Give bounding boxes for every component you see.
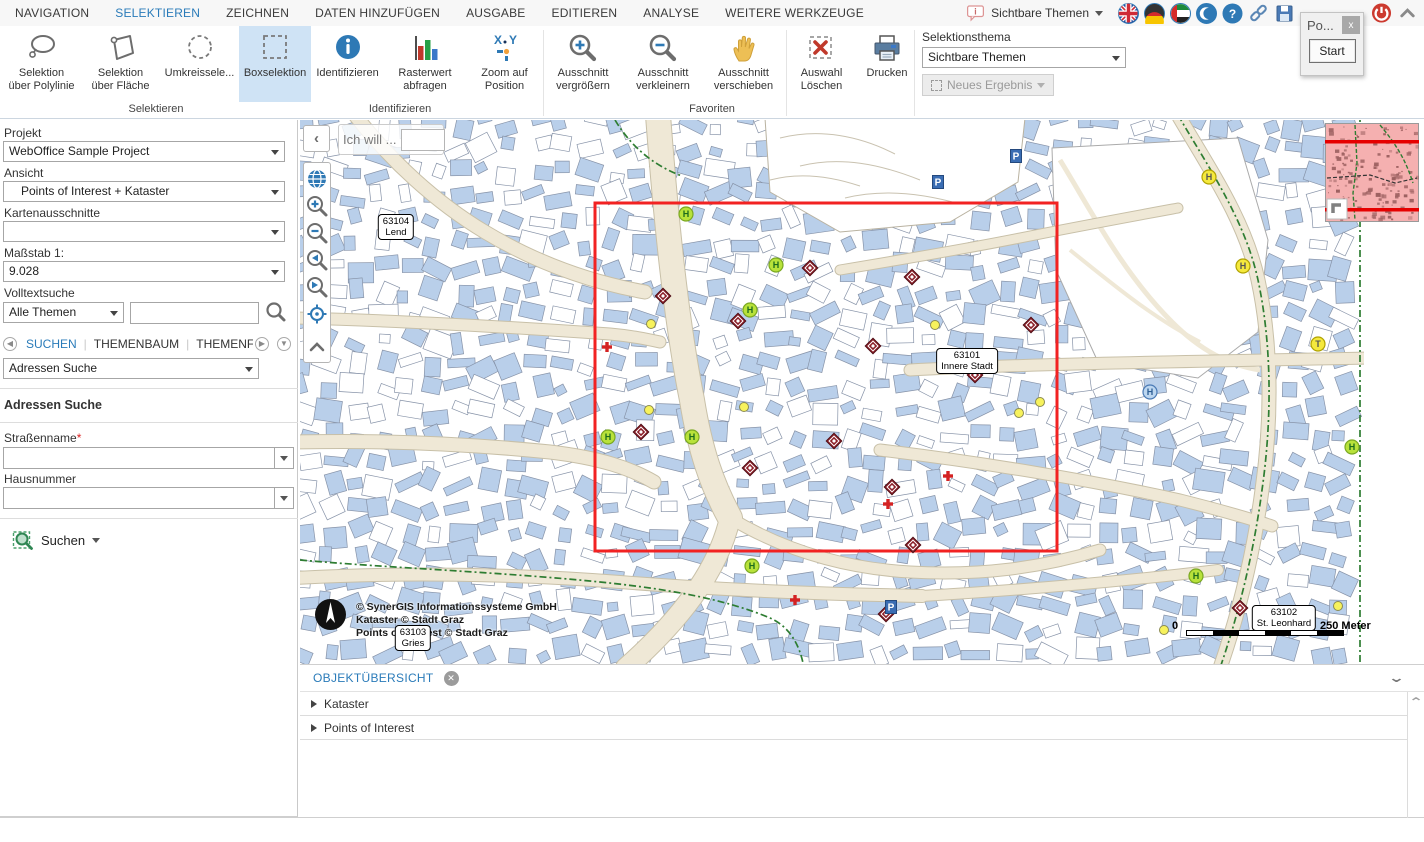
expand-arrow-icon <box>311 700 317 708</box>
overview-map[interactable] <box>1325 123 1419 222</box>
tab-themenbaum[interactable]: THEMENBAUM <box>87 337 186 351</box>
popup-title: Po... <box>1307 18 1334 33</box>
district-label-63103: 63103Gries <box>395 625 431 651</box>
volltextsuche-label: Volltextsuche <box>4 286 75 300</box>
menu-tab-selektieren[interactable]: SELEKTIEREN <box>102 0 213 26</box>
massstab-label: Maßstab 1: <box>4 246 64 260</box>
theme-quick-select[interactable]: Sichtbare Themen <box>991 6 1103 20</box>
delete-selection-icon <box>784 29 859 66</box>
panel-collapse-icon[interactable]: ⌄ <box>1388 670 1405 686</box>
tabs-scroll-right-icon[interactable]: ▶ <box>255 337 269 351</box>
group-label-selektieren: Selektieren <box>128 103 183 115</box>
kartenausschnitte-label: Kartenausschnitte <box>4 206 100 220</box>
popup-dialog: Po... x Start <box>1300 12 1364 76</box>
map-copyright: © SynerGIS Informationssysteme GmbHKatas… <box>356 601 557 640</box>
svg-text:H: H <box>747 305 754 315</box>
ich-will-input[interactable] <box>401 129 445 151</box>
tabs-scroll-left-icon[interactable]: ◀ <box>3 337 17 351</box>
barchart-icon <box>384 29 466 66</box>
link-icon[interactable] <box>1248 3 1269 24</box>
panel-scroll-up-icon[interactable]: ⌃ <box>1408 695 1423 709</box>
tool-selektion-ueber-polylinie[interactable]: Selektion über Polylinie <box>2 26 81 102</box>
projekt-label: Projekt <box>4 126 41 140</box>
weboffice-app: NAVIGATIONSELEKTIERENZEICHNENDATEN HINZU… <box>0 0 1424 842</box>
hausnummer-combo[interactable] <box>3 487 294 509</box>
menu-tab-weitere-werkzeuge[interactable]: WEITERE WERKZEUGE <box>712 0 877 26</box>
svg-text:H: H <box>683 209 690 219</box>
selektionsthema-label: Selektionsthema <box>922 30 1132 44</box>
svg-text:T: T <box>1315 339 1321 349</box>
volltext-search-input[interactable] <box>130 302 259 324</box>
theme-quick-label: Sichtbare Themen <box>991 6 1089 20</box>
tool-drucken[interactable]: Drucken <box>859 26 915 102</box>
map-zoom-in-icon[interactable] <box>305 193 329 218</box>
tool-selektion-ueber-flaeche[interactable]: Selektion über Fläche <box>81 26 160 102</box>
map-nav-toolbar <box>303 162 331 363</box>
kartenausschnitte-select[interactable] <box>3 221 285 242</box>
tool-ausschnitt-verschieben[interactable]: Ausschnitt verschieben <box>703 26 784 102</box>
expand-arrow-icon <box>311 724 317 732</box>
dashed-box-icon <box>931 80 942 91</box>
locate-icon[interactable] <box>305 301 329 326</box>
globe-icon[interactable] <box>305 166 329 191</box>
ansicht-select[interactable]: Points of Interest + Kataster <box>3 181 285 202</box>
popup-close-button[interactable]: x <box>1342 16 1360 34</box>
menu-tab-zeichnen[interactable]: ZEICHNEN <box>213 0 302 26</box>
circle-dashed-icon <box>160 29 239 66</box>
north-arrow-icon <box>314 598 347 631</box>
ansicht-label: Ansicht <box>4 166 43 180</box>
polygon-icon <box>81 29 160 66</box>
chevron-down-icon <box>92 538 100 543</box>
massstab-select[interactable]: 9.028 <box>3 261 285 282</box>
tab-suchen[interactable]: SUCHEN <box>19 337 84 351</box>
svg-text:X: X <box>493 33 501 47</box>
suchen-button[interactable]: Suchen <box>12 528 100 553</box>
power-icon[interactable] <box>1371 3 1392 24</box>
tool-boxselektion[interactable]: Boxselektion <box>239 26 311 102</box>
group-label-favoriten: Favoriten <box>689 103 735 115</box>
flag-ae-icon[interactable] <box>1170 3 1191 24</box>
menu-tab-analyse[interactable]: ANALYSE <box>630 0 712 26</box>
svg-text:?: ? <box>1229 7 1236 21</box>
district-label-63104: 63104Lend <box>378 214 414 240</box>
next-extent-icon[interactable] <box>305 274 329 299</box>
popup-start-button[interactable]: Start <box>1309 39 1356 63</box>
help-icon[interactable]: ? <box>1222 3 1243 24</box>
flag-uk-icon[interactable] <box>1118 3 1139 24</box>
object-overview-panel: OBJEKTÜBERSICHT ✕ ⌄ KatasterPoints of In… <box>300 664 1424 817</box>
svg-text:H: H <box>1206 172 1213 182</box>
group-label-identifizieren: Identifizieren <box>369 103 431 115</box>
tool-zoom-auf-position[interactable]: XY Zoom auf Position <box>466 26 543 102</box>
svg-text:H: H <box>1240 261 1247 271</box>
svg-text:P: P <box>1013 152 1020 163</box>
collapse-sidebar-button[interactable]: ‹ <box>303 125 330 152</box>
menu-tab-daten-hinzuf-gen[interactable]: DATEN HINZUFÜGEN <box>302 0 453 26</box>
search-type-select[interactable]: Adressen Suche <box>3 358 259 379</box>
sidebar-tabs: ◀ SUCHEN|THEMENBAUM|THEMENFILTER ▶ ▼ <box>0 334 298 354</box>
menu-bar: NAVIGATIONSELEKTIERENZEICHNENDATEN HINZU… <box>0 0 1424 26</box>
selektionsthema-value: Sichtbare Themen <box>928 50 1026 64</box>
ich-will-label: Ich will ... <box>343 132 396 147</box>
tool-umkreisselektion[interactable]: Umkreissele... <box>160 26 239 102</box>
left-panel: Projekt WebOffice Sample Project Ansicht… <box>0 120 298 817</box>
tool-rasterwert-abfragen[interactable]: Rasterwert abfragen <box>384 26 466 102</box>
section-title: Adressen Suche <box>4 398 102 412</box>
svg-text:i: i <box>974 6 976 16</box>
zoom-out-icon <box>623 29 703 66</box>
info-icon <box>311 29 384 66</box>
menu-tab-editieren[interactable]: EDITIEREN <box>538 0 630 26</box>
ribbon-toolbar: Selektion über Polylinie Selektion über … <box>0 26 1424 119</box>
previous-extent-icon[interactable] <box>305 247 329 272</box>
chevron-down-icon <box>1112 56 1120 61</box>
scale-bar: 0 250 Meter <box>1172 619 1412 641</box>
overview-row-points-of-interest[interactable]: Points of Interest <box>300 716 1407 740</box>
ich-will-widget[interactable]: Ich will ... <box>338 124 444 155</box>
svg-text:H: H <box>605 432 612 442</box>
tool-identifizieren[interactable]: Identifizieren <box>311 26 384 102</box>
zoom-in-icon <box>543 29 623 66</box>
volltext-scope-select[interactable]: Alle Themen <box>3 302 124 323</box>
crescent-icon[interactable] <box>1196 3 1217 24</box>
tab-themenfilter[interactable]: THEMENFILTER <box>189 337 253 351</box>
projekt-select[interactable]: WebOffice Sample Project <box>3 141 285 162</box>
flag-de-icon[interactable] <box>1144 3 1165 24</box>
xy-icon: XY <box>466 29 543 66</box>
menu-tabs: NAVIGATIONSELEKTIERENZEICHNENDATEN HINZU… <box>0 0 877 26</box>
strassenname-label: Straßenname* <box>4 431 81 445</box>
map-zoom-out-icon[interactable] <box>305 220 329 245</box>
hand-icon <box>703 29 784 66</box>
tool-auswahl-loeschen[interactable]: Auswahl Löschen <box>784 26 859 102</box>
chevron-down-icon <box>1037 83 1045 88</box>
svg-text:H: H <box>749 561 756 571</box>
menu-tab-navigation[interactable]: NAVIGATION <box>2 0 102 26</box>
selektionsthema-section: Selektionsthema Sichtbare Themen Neues E… <box>922 30 1132 96</box>
save-icon[interactable] <box>1274 3 1295 24</box>
tabs-more-icon[interactable]: ▼ <box>277 337 291 351</box>
svg-text:P: P <box>935 178 942 189</box>
svg-text:H: H <box>1193 571 1200 581</box>
search-icon[interactable] <box>265 301 287 326</box>
tool-ausschnitt-verkleinern[interactable]: Ausschnitt verkleinern <box>623 26 703 102</box>
print-icon <box>859 29 915 66</box>
box-dashed-icon <box>239 29 311 66</box>
svg-text:Y: Y <box>508 33 516 47</box>
svg-text:P: P <box>888 603 895 614</box>
lasso-icon <box>2 29 81 66</box>
selektionsthema-select[interactable]: Sichtbare Themen <box>922 47 1126 68</box>
chevron-down-icon <box>1095 11 1103 16</box>
svg-text:H: H <box>773 260 780 270</box>
neues-ergebnis-button[interactable]: Neues Ergebnis <box>922 74 1054 96</box>
svg-text:H: H <box>689 432 696 442</box>
district-label-63101: 63101Innere Stadt <box>936 348 998 374</box>
collapse-ribbon-icon[interactable] <box>1397 3 1418 24</box>
strassenname-combo[interactable] <box>3 447 294 469</box>
overview-row-kataster[interactable]: Kataster <box>300 692 1407 716</box>
panel-close-icon[interactable]: ✕ <box>444 671 459 686</box>
svg-text:H: H <box>1147 387 1154 397</box>
map-viewport[interactable]: HHHHHHHHHHTHPPP ‹ Ich will ... 63104Lend… <box>300 120 1364 664</box>
panel-title: OBJEKTÜBERSICHT <box>313 671 434 685</box>
hausnummer-label: Hausnummer <box>4 472 76 486</box>
menu-tab-ausgabe[interactable]: AUSGABE <box>453 0 538 26</box>
tool-ausschnitt-vergroessern[interactable]: Ausschnitt vergrößern <box>543 26 623 102</box>
svg-text:H: H <box>1349 442 1356 452</box>
collapse-nav-icon[interactable] <box>305 334 329 359</box>
info-bubble-icon[interactable]: i <box>965 3 986 24</box>
ribbon-tools: Selektion über Polylinie Selektion über … <box>2 26 915 102</box>
search-selection-icon <box>12 528 34 553</box>
